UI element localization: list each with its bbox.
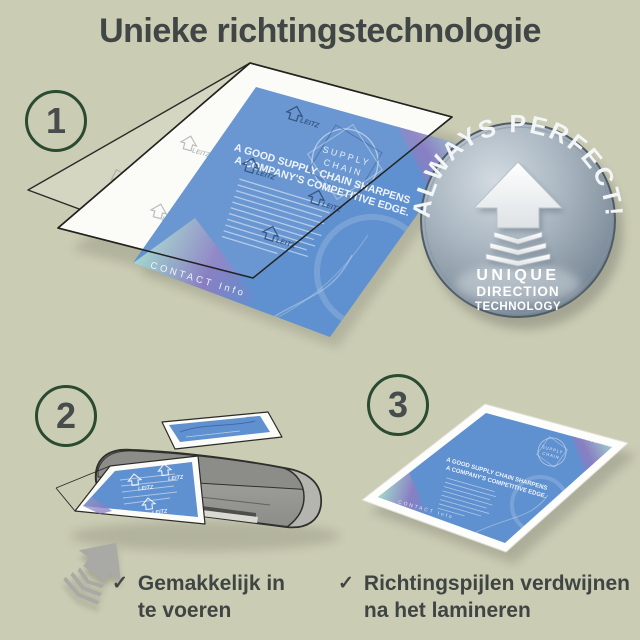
checklist-line: na het lamineren [364, 599, 531, 622]
infographic: Unieke richtingstechnologie [0, 0, 640, 640]
checklist-line: Richtingspijlen verdwijnen [364, 572, 630, 595]
step-circle-3: 3 [367, 374, 429, 436]
badge-labels: UNIQUE DIRECTION TECHNOLOGY [475, 267, 561, 313]
checkmark-icon: ✓ [112, 570, 128, 624]
pouch-and-document-illustration: LEITZ LEITZ LEITZ [28, 63, 473, 348]
checklist-text: Richtingspijlen verdwijnen na het lamine… [364, 570, 630, 624]
svg-text:UNIQUE: UNIQUE [476, 267, 559, 284]
checklist-text: Gemakkelijk in te voeren [138, 570, 285, 624]
always-perfect-badge: ALWAYS PERFECT! UNIQUE DIRECTION TECHNOL… [408, 110, 628, 329]
svg-text:DIRECTION: DIRECTION [476, 284, 559, 299]
checkmark-icon: ✓ [338, 570, 354, 624]
entering-pouch [162, 412, 282, 449]
illustration-canvas: LEITZ LEITZ LEITZ [0, 0, 640, 640]
exiting-document: LEITZ LEITZ LEITZ [56, 456, 205, 524]
step-number: 2 [56, 395, 76, 437]
step-circle-2: 2 [35, 385, 97, 447]
checklist-line: Gemakkelijk in [138, 572, 285, 595]
step-number: 1 [46, 100, 66, 142]
step-circle-1: 1 [25, 90, 87, 152]
checklist-line: te voeren [138, 599, 231, 622]
svg-text:TECHNOLOGY: TECHNOLOGY [475, 301, 561, 313]
step-number: 3 [388, 384, 408, 426]
checklist-item: ✓ Gemakkelijk in te voeren [112, 570, 285, 624]
checklist-item: ✓ Richtingspijlen verdwijnen na het lami… [338, 570, 630, 624]
